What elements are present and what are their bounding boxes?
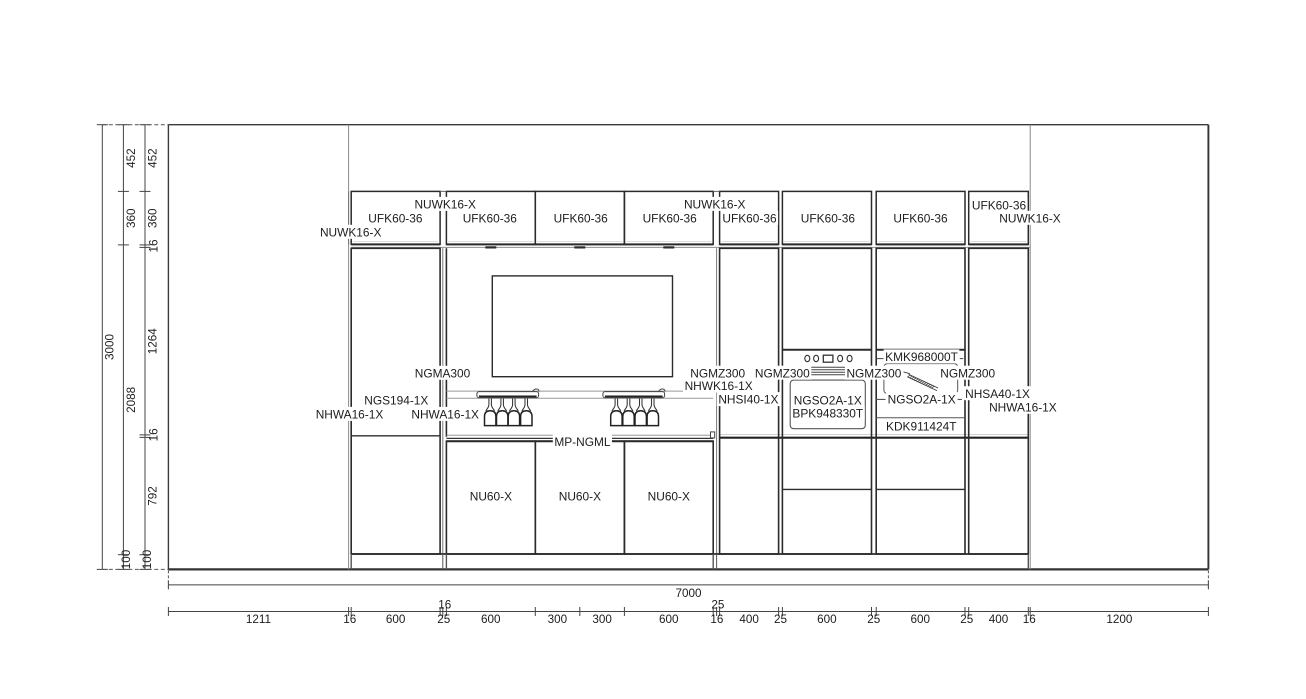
svg-text:100: 100 [120, 549, 133, 569]
svg-text:25: 25 [437, 613, 451, 626]
svg-text:25: 25 [711, 599, 725, 612]
svg-text:UFK60-36: UFK60-36 [893, 212, 948, 226]
svg-text:BPK948330T: BPK948330T [792, 406, 863, 420]
svg-text:NUWK16-X: NUWK16-X [320, 225, 382, 239]
svg-text:KDK911424T: KDK911424T [886, 420, 957, 434]
svg-text:300: 300 [592, 613, 612, 626]
svg-text:NGMZ300: NGMZ300 [940, 366, 995, 380]
svg-text:452: 452 [146, 148, 159, 168]
svg-text:NGSO2A-1X: NGSO2A-1X [888, 393, 956, 407]
svg-text:UFK60-36: UFK60-36 [801, 212, 856, 226]
svg-text:1211: 1211 [246, 613, 271, 626]
svg-text:600: 600 [481, 613, 501, 626]
svg-text:UFK60-36: UFK60-36 [643, 212, 698, 226]
svg-text:UFK60-36: UFK60-36 [554, 212, 609, 226]
svg-text:16: 16 [148, 239, 161, 252]
svg-text:16: 16 [1023, 613, 1036, 626]
svg-text:400: 400 [989, 613, 1009, 626]
svg-text:NHWK16-1X: NHWK16-1X [685, 379, 753, 393]
svg-text:NHWA16-1X: NHWA16-1X [989, 400, 1057, 414]
svg-text:MP-NGML: MP-NGML [554, 435, 611, 449]
svg-text:1200: 1200 [1106, 613, 1133, 626]
svg-text:16: 16 [148, 428, 161, 441]
svg-text:792: 792 [146, 486, 159, 506]
svg-text:16: 16 [438, 599, 451, 612]
svg-text:600: 600 [386, 613, 406, 626]
svg-text:UFK60-36: UFK60-36 [368, 212, 423, 226]
svg-text:600: 600 [659, 613, 679, 626]
svg-text:NHSA40-1X: NHSA40-1X [965, 387, 1030, 401]
svg-text:UFK60-36: UFK60-36 [972, 199, 1027, 213]
svg-text:NHWA16-1X: NHWA16-1X [411, 408, 479, 422]
svg-text:UFK60-36: UFK60-36 [722, 212, 777, 226]
svg-text:7000: 7000 [675, 587, 702, 600]
svg-text:NU60-X: NU60-X [470, 489, 512, 503]
svg-text:400: 400 [739, 613, 759, 626]
svg-text:25: 25 [774, 613, 788, 626]
svg-text:UFK60-36: UFK60-36 [463, 212, 518, 226]
svg-text:3000: 3000 [104, 334, 117, 361]
svg-text:100: 100 [141, 549, 154, 569]
svg-text:600: 600 [817, 613, 837, 626]
svg-text:NGS194-1X: NGS194-1X [364, 394, 428, 408]
svg-text:NGMA300: NGMA300 [415, 366, 471, 380]
svg-text:25: 25 [960, 613, 974, 626]
svg-text:NU60-X: NU60-X [559, 489, 601, 503]
svg-text:NHWA16-1X: NHWA16-1X [316, 408, 384, 422]
svg-text:16: 16 [710, 613, 723, 626]
svg-text:NUWK16-X: NUWK16-X [414, 198, 476, 212]
svg-text:452: 452 [125, 148, 138, 168]
svg-text:NGMZ300: NGMZ300 [755, 366, 810, 380]
svg-text:360: 360 [146, 208, 159, 228]
svg-text:1264: 1264 [146, 328, 159, 355]
svg-text:2088: 2088 [125, 387, 138, 413]
svg-text:16: 16 [343, 613, 356, 626]
svg-text:25: 25 [867, 613, 881, 626]
svg-text:NU60-X: NU60-X [648, 489, 690, 503]
svg-text:300: 300 [548, 613, 568, 626]
svg-text:600: 600 [910, 613, 930, 626]
svg-text:KMK968000T: KMK968000T [885, 350, 958, 364]
svg-text:360: 360 [125, 208, 138, 228]
svg-text:NUWK16-X: NUWK16-X [999, 211, 1061, 225]
svg-text:NHSI40-1X: NHSI40-1X [718, 393, 778, 407]
svg-text:NUWK16-X: NUWK16-X [684, 198, 746, 212]
svg-text:NGMZ300: NGMZ300 [846, 366, 901, 380]
svg-text:NGSO2A-1X: NGSO2A-1X [794, 393, 862, 407]
